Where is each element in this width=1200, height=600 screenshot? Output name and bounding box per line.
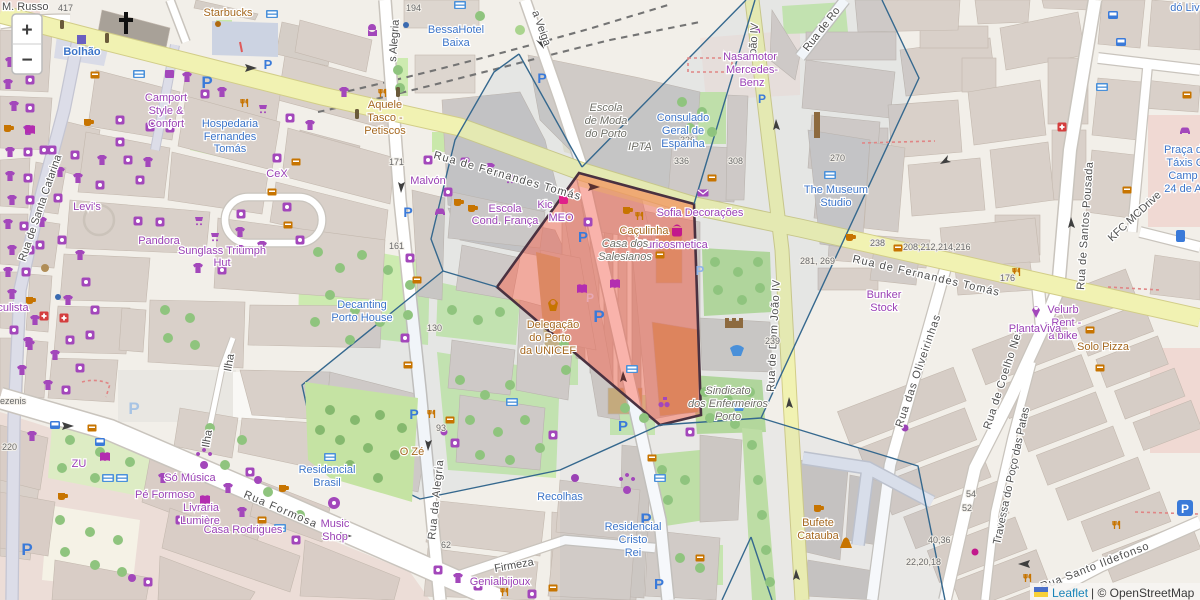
svg-text:176: 176 (1000, 273, 1015, 283)
svg-text:Fernandes: Fernandes (204, 131, 257, 143)
svg-text:dó Live: dó Live (1170, 2, 1200, 14)
svg-text:Hospedaria: Hospedaria (202, 118, 259, 130)
svg-text:Camp: Camp (1168, 170, 1197, 182)
svg-text:40,36: 40,36 (928, 535, 951, 545)
svg-text:P: P (593, 307, 604, 326)
svg-text:Style &: Style & (149, 105, 185, 117)
svg-text:MEO: MEO (548, 212, 574, 224)
svg-text:Só Música: Só Música (164, 472, 216, 484)
svg-text:ezenis: ezenis (0, 396, 27, 406)
svg-text:The Museum: The Museum (804, 184, 868, 196)
svg-text:do Porto: do Porto (529, 332, 571, 344)
svg-text:Aquele: Aquele (368, 99, 402, 111)
svg-text:Levi's: Levi's (73, 201, 101, 213)
svg-text:Stock: Stock (870, 302, 898, 314)
svg-text:Salesianos: Salesianos (598, 251, 652, 263)
svg-text:culista: culista (0, 302, 29, 314)
svg-text:Escola: Escola (488, 203, 522, 215)
svg-text:24 de Ag: 24 de Ag (1164, 183, 1200, 195)
svg-text:308: 308 (728, 156, 743, 166)
svg-text:Escola: Escola (589, 102, 622, 114)
svg-text:P: P (654, 576, 664, 593)
svg-text:Consulado: Consulado (657, 112, 710, 124)
svg-text:Petiscos: Petiscos (364, 125, 406, 137)
svg-text:281, 269: 281, 269 (800, 256, 835, 266)
svg-text:Shop: Shop (322, 531, 348, 543)
svg-text:O Zé: O Zé (400, 446, 424, 458)
svg-text:Baixa: Baixa (442, 37, 470, 49)
svg-text:161: 161 (389, 241, 404, 251)
svg-text:Geral de: Geral de (662, 125, 704, 137)
svg-text:Kic: Kic (537, 199, 553, 211)
svg-text:do Porto: do Porto (585, 128, 627, 140)
svg-text:P: P (201, 73, 212, 92)
svg-text:Caçulinha: Caçulinha (620, 225, 670, 237)
svg-text:P: P (264, 57, 273, 72)
svg-text:IPTA: IPTA (628, 141, 652, 153)
svg-text:Porto House: Porto House (331, 312, 392, 324)
svg-text:Music: Music (321, 518, 350, 530)
svg-text:Decanting: Decanting (337, 299, 387, 311)
svg-text:BessaHotel: BessaHotel (428, 24, 484, 36)
svg-text:P: P (578, 229, 588, 246)
svg-text:Residencial: Residencial (299, 464, 356, 476)
svg-text:Nasamotor: Nasamotor (723, 51, 777, 63)
svg-text:Studio: Studio (820, 197, 851, 209)
svg-text:P: P (128, 399, 139, 418)
svg-text:Praça d: Praça d (1164, 144, 1200, 156)
svg-text:P: P (696, 263, 705, 278)
svg-text:Cond. França: Cond. França (472, 215, 540, 227)
svg-text:Bufete: Bufete (802, 517, 834, 529)
svg-text:da UNICEF: da UNICEF (520, 345, 577, 357)
svg-text:Táxis C: Táxis C (1166, 157, 1200, 169)
svg-text:Benz: Benz (739, 77, 764, 89)
svg-text:Delegação: Delegação (527, 319, 580, 331)
svg-text:238: 238 (870, 238, 885, 248)
svg-text:62: 62 (441, 540, 451, 550)
svg-text:130: 130 (427, 323, 442, 333)
svg-text:208,212,214,216: 208,212,214,216 (903, 242, 971, 252)
svg-text:M. Russo: M. Russo (2, 1, 48, 13)
svg-text:Sindicato: Sindicato (705, 385, 750, 397)
svg-text:| © OpenStreetMap: | © OpenStreetMap (1091, 586, 1195, 600)
svg-text:Camport: Camport (145, 92, 187, 104)
svg-text:417: 417 (58, 3, 73, 13)
svg-text:Porto: Porto (715, 411, 741, 423)
svg-text:Cristo: Cristo (619, 534, 648, 546)
svg-text:194: 194 (406, 3, 421, 13)
svg-text:Confort: Confort (148, 118, 184, 130)
svg-text:Livraria: Livraria (183, 502, 220, 514)
svg-text:Malvón: Malvón (410, 175, 445, 187)
svg-text:239: 239 (765, 336, 780, 346)
svg-text:Brasil: Brasil (313, 477, 341, 489)
svg-text:Genialbijoux: Genialbijoux (470, 576, 531, 588)
svg-text:Velurb: Velurb (1047, 304, 1078, 316)
svg-text:CeX: CeX (266, 168, 288, 180)
svg-text:Hut: Hut (213, 257, 230, 269)
svg-text:Bunker: Bunker (867, 289, 902, 301)
svg-text:Tasco -: Tasco - (367, 112, 403, 124)
svg-text:dos Enfermeiros: dos Enfermeiros (688, 398, 769, 410)
svg-text:−: − (21, 50, 32, 71)
svg-text:Casa Rodrigues: Casa Rodrigues (204, 524, 283, 536)
svg-text:P: P (758, 92, 766, 106)
svg-text:Pandora: Pandora (138, 235, 180, 247)
svg-text:+: + (21, 20, 32, 41)
svg-text:Sunglass Triumph: Sunglass Triumph (178, 245, 266, 257)
svg-text:ZU: ZU (72, 458, 87, 470)
svg-text:Leaflet: Leaflet (1052, 586, 1089, 600)
svg-text:Espanha: Espanha (661, 138, 705, 150)
svg-text:Residencial: Residencial (605, 521, 662, 533)
svg-text:P: P (586, 291, 594, 305)
svg-text:54: 54 (966, 489, 976, 499)
svg-text:Bolhão: Bolhão (63, 46, 101, 58)
svg-text:P: P (409, 406, 418, 422)
svg-text:Sofia Decorações: Sofia Decorações (657, 207, 744, 219)
svg-text:de Moda: de Moda (585, 115, 628, 127)
svg-text:270: 270 (830, 153, 845, 163)
svg-text:220: 220 (2, 442, 17, 452)
svg-text:Starbucks: Starbucks (204, 7, 253, 19)
svg-text:Pé Formoso: Pé Formoso (135, 489, 195, 501)
svg-text:Casa dos: Casa dos (602, 238, 649, 250)
svg-text:22,20,18: 22,20,18 (906, 557, 941, 567)
svg-text:P: P (21, 540, 32, 559)
svg-text:P: P (537, 70, 546, 86)
svg-text:PlantaViva: PlantaViva (1009, 323, 1062, 335)
svg-text:Rei: Rei (625, 547, 642, 559)
svg-text:171: 171 (389, 157, 404, 167)
svg-text:Recolhas: Recolhas (537, 491, 583, 503)
svg-text:Catauba: Catauba (797, 530, 839, 542)
svg-text:Solo Pizza: Solo Pizza (1077, 341, 1130, 353)
svg-text:P: P (618, 418, 628, 435)
svg-text:P: P (1181, 502, 1189, 516)
svg-text:P: P (403, 204, 412, 220)
svg-text:93: 93 (436, 423, 446, 433)
svg-text:Mercedes-: Mercedes- (726, 64, 778, 76)
svg-text:336: 336 (674, 156, 689, 166)
svg-text:Tomás: Tomás (214, 143, 247, 155)
svg-text:52: 52 (962, 503, 972, 513)
